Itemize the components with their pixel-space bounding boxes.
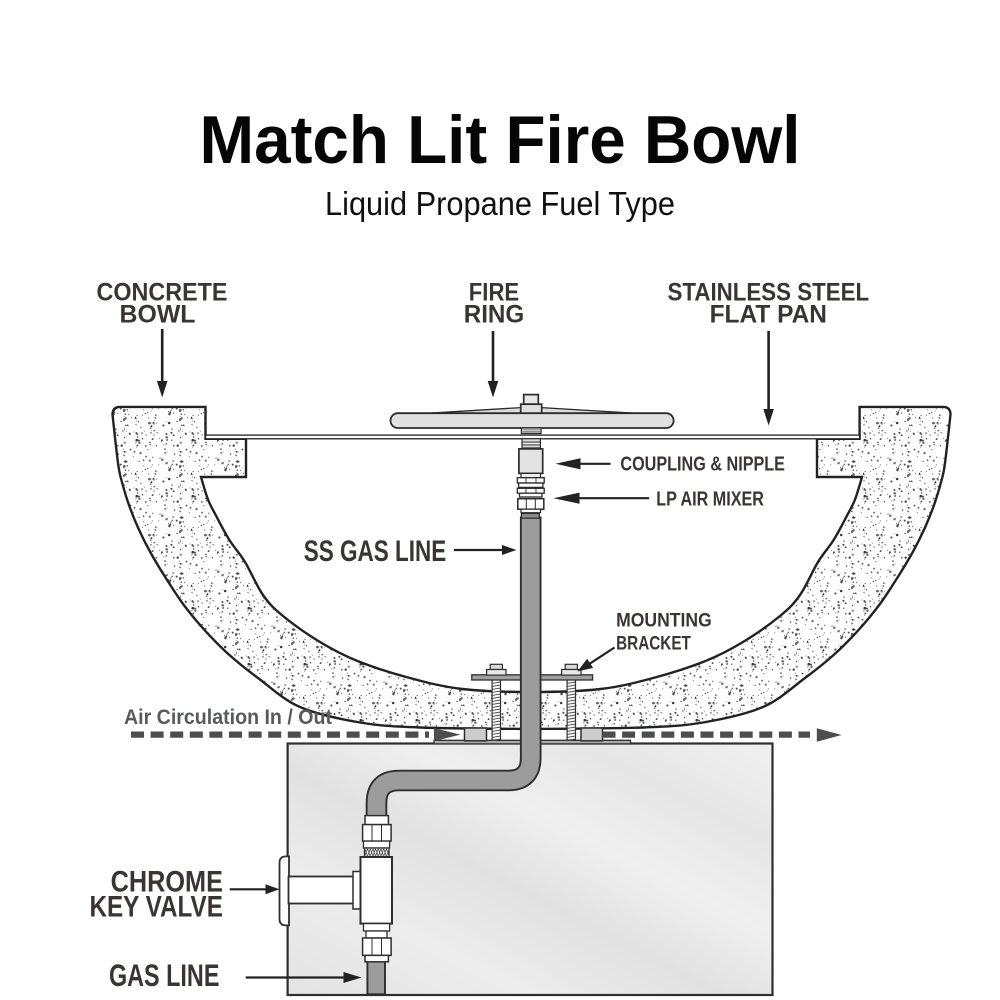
svg-text:SS GAS LINE: SS GAS LINE xyxy=(304,535,447,568)
svg-text:Air Circulation In / Out: Air Circulation In / Out xyxy=(124,706,332,729)
svg-text:GAS LINE: GAS LINE xyxy=(109,957,220,993)
svg-text:RING: RING xyxy=(464,301,525,329)
svg-text:KEY VALVE: KEY VALVE xyxy=(90,891,223,924)
svg-text:BRACKET: BRACKET xyxy=(616,633,691,654)
svg-text:FLAT PAN: FLAT PAN xyxy=(710,301,827,329)
svg-text:Match Lit Fire Bowl: Match Lit Fire Bowl xyxy=(200,102,801,178)
svg-text:LP AIR MIXER: LP AIR MIXER xyxy=(656,489,764,511)
svg-text:Liquid Propane Fuel Type: Liquid Propane Fuel Type xyxy=(325,185,675,222)
svg-text:MOUNTING: MOUNTING xyxy=(616,610,712,631)
svg-text:BOWL: BOWL xyxy=(120,301,196,329)
svg-text:COUPLING & NIPPLE: COUPLING & NIPPLE xyxy=(620,454,785,476)
